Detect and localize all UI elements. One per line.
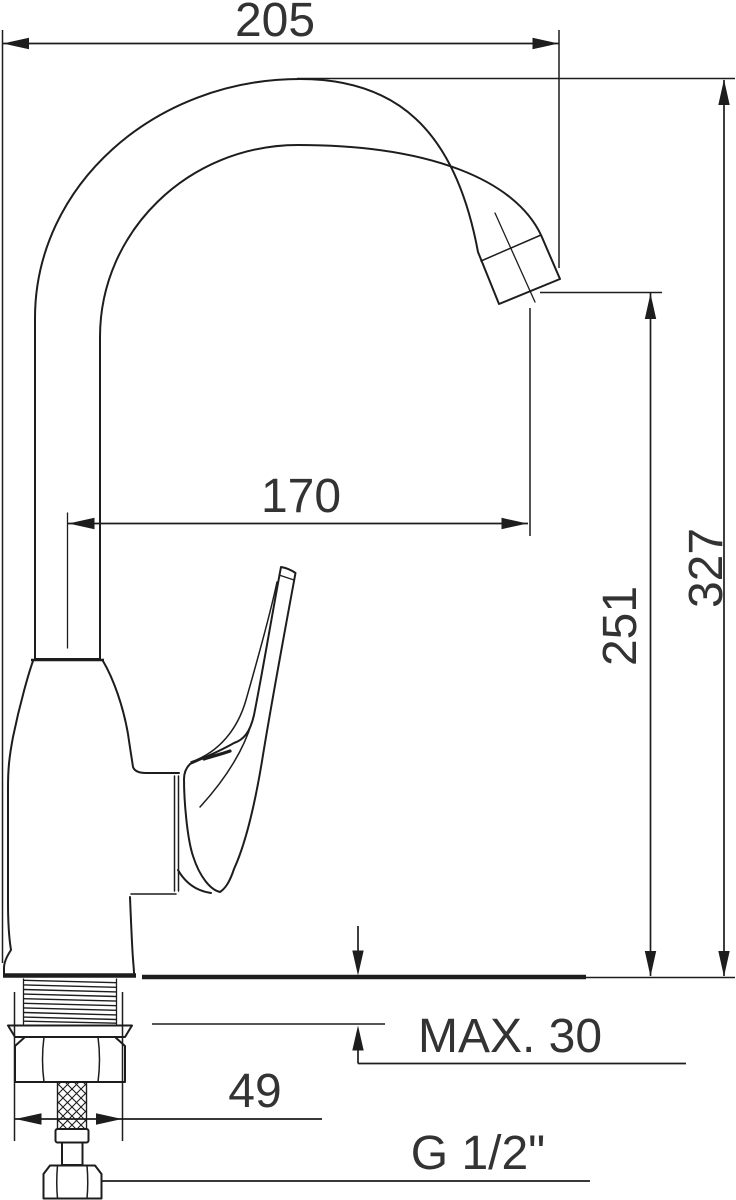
dim-label-total-height: 327 (680, 528, 733, 608)
dim-label-outlet-height: 251 (594, 586, 647, 666)
dim-spout-reach: 170 (68, 308, 531, 648)
arrowhead-left (3, 38, 29, 49)
mounting-nut (15, 1037, 125, 1082)
handle (184, 567, 296, 892)
connection-nut (44, 1166, 102, 1199)
arrowhead-bottom (645, 951, 656, 977)
dim-max-mounting-thickness: MAX. 30 (352, 926, 686, 1064)
arrowhead-top (645, 294, 656, 320)
arrowhead-right (533, 38, 559, 49)
spout-outline (35, 79, 560, 659)
arrowhead-up (352, 1026, 363, 1051)
mounting-hardware (8, 979, 132, 1199)
mounting-nut-body (15, 1037, 125, 1082)
arrowhead-down (352, 951, 363, 976)
arrowhead-right (96, 1113, 122, 1124)
drawing-svg: 205 170 251 327 MAX. 30 (0, 0, 736, 1200)
connection-nut-facet-right (87, 1166, 88, 1199)
dim-outlet-height: 251 (540, 293, 662, 977)
faucet-dimension-drawing: 205 170 251 327 MAX. 30 (0, 0, 736, 1200)
dim-label-max-mounting-thickness: MAX. 30 (418, 1010, 602, 1063)
body-left-edge (4, 661, 33, 973)
threaded-shank (24, 979, 117, 1024)
dim-connection-thread: G 1/2" (101, 1127, 590, 1181)
body-right-edge (103, 661, 179, 773)
handle-outline (184, 567, 296, 892)
arrowhead-top (718, 80, 729, 106)
hose-ferrule (56, 1129, 89, 1143)
dim-label-connection-thread: G 1/2" (411, 1127, 545, 1180)
braided-hose (58, 1082, 87, 1129)
hose-tube (62, 1143, 83, 1166)
arrowhead-right (502, 518, 528, 529)
connection-nut-body (44, 1166, 102, 1199)
shank-thread-hatching (24, 980, 117, 1023)
arrowhead-left (16, 1113, 42, 1124)
braided-hose-body (58, 1082, 87, 1129)
dim-label-spout-reach: 170 (261, 470, 341, 523)
connection-nut-facet-left (57, 1166, 58, 1199)
washer-flange (8, 1026, 132, 1038)
arrowhead-bottom (718, 951, 729, 977)
body-right-lower-edge (130, 897, 134, 973)
dim-label-spout-width: 205 (235, 0, 315, 47)
dim-label-base-width: 49 (228, 1065, 281, 1118)
